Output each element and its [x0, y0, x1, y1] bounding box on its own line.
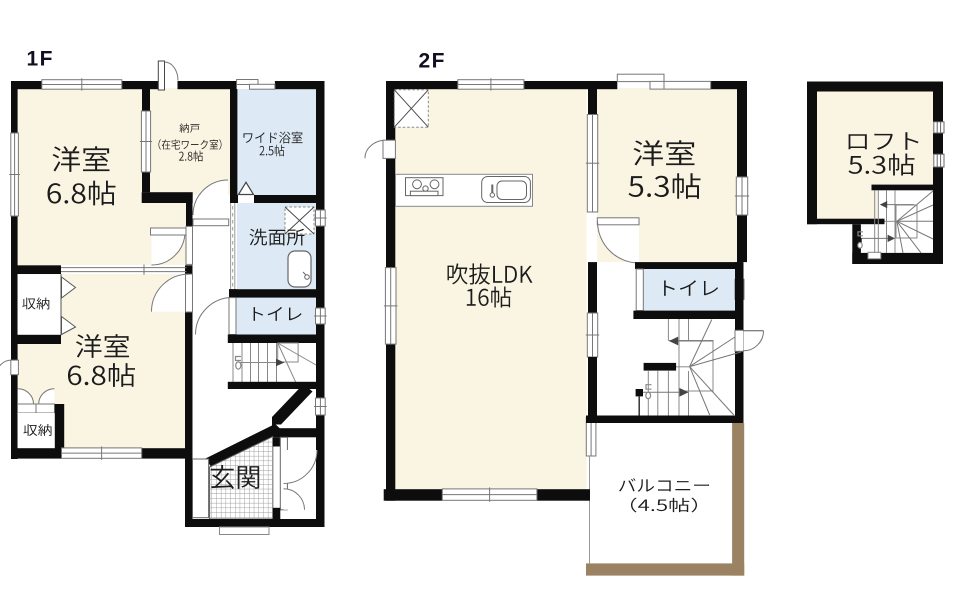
svg-text:2F: 2F	[419, 49, 447, 72]
svg-text:1F: 1F	[27, 47, 55, 70]
